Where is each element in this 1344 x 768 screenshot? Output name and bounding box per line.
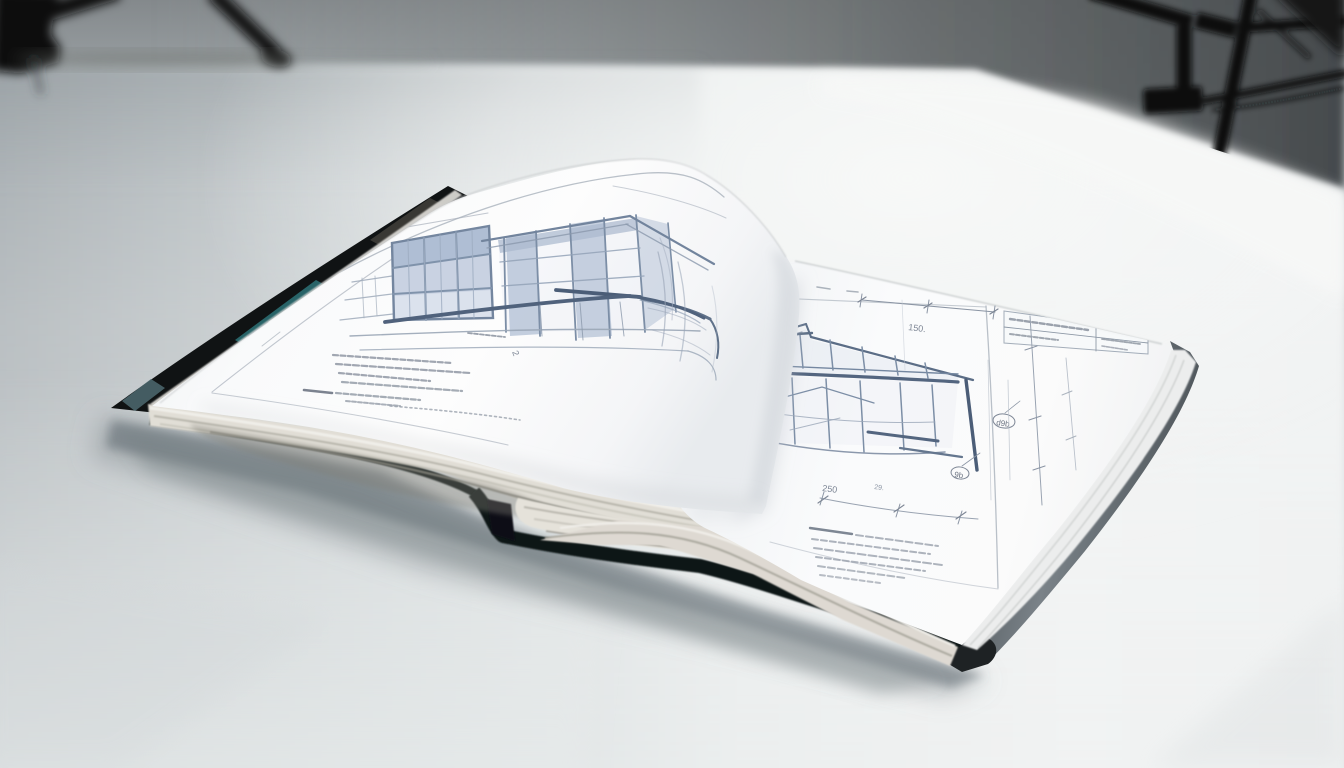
- svg-text:29.: 29.: [874, 484, 885, 492]
- svg-text:150.: 150.: [908, 322, 927, 334]
- svg-text:250: 250: [822, 483, 838, 495]
- svg-text:9b: 9b: [954, 470, 965, 480]
